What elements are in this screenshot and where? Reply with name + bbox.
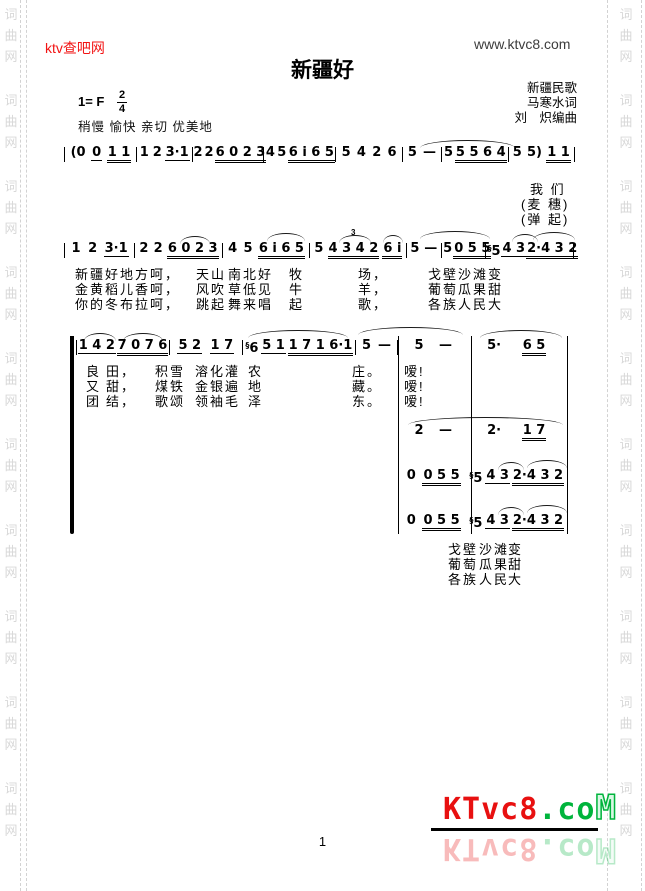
lyric-row-verse1: 新疆好地方呵，天山南北好牧场，戈壁沙滩变 [0, 264, 645, 279]
watermark-char: 曲 [3, 111, 19, 132]
note-token: 6 5 [522, 339, 547, 356]
credit-lyricist: 马寒水词 [514, 96, 577, 111]
note-token: 5 [242, 242, 253, 256]
note-token: 5 [341, 146, 352, 160]
lyric-intro-3: (弹 起) [521, 209, 569, 228]
note-token: 5 [407, 146, 418, 160]
slur-arc [383, 235, 403, 243]
watermark-char: 曲 [3, 197, 19, 218]
voice-4-line: 00 5 5§54 32·4 3 2 [400, 514, 566, 532]
segno-mark: § [245, 341, 249, 350]
lyric-segment: 泽 [248, 391, 263, 410]
note-token: — [423, 242, 438, 256]
watermark-group: 词曲网 [618, 434, 634, 497]
watermark-group: 词曲网 [3, 606, 19, 669]
note-token: 5 [512, 146, 523, 160]
lyric-segment: 舞来唱 [228, 294, 273, 313]
slur-arc [267, 233, 305, 241]
note-token: 2· [486, 424, 502, 438]
tempo-marking: 稍慢 愉快 亲切 优美地 [78, 116, 213, 135]
note-token: 5 [442, 242, 453, 256]
measure: 5426 [336, 146, 401, 160]
logo-green-text: .co [538, 792, 595, 827]
slur-arc [84, 333, 116, 341]
watermark-char: 词 [3, 520, 19, 541]
segno-mark: § [487, 244, 491, 253]
note-token: 2 [371, 146, 382, 160]
left-dashed-border-outer [26, 0, 27, 891]
lyric-segment: 大 [508, 569, 523, 588]
watermark-char: 词 [3, 778, 19, 799]
watermark-char: 词 [618, 692, 634, 713]
voice-1-line: 5—5·6 5 [400, 339, 566, 357]
note-token: 5) [526, 146, 543, 160]
note-token: 4 3 4 2 [328, 242, 380, 259]
watermark-char: 曲 [3, 25, 19, 46]
credit-source: 新疆民歌 [514, 81, 577, 96]
measure: 00 5 5 [400, 514, 466, 531]
watermark-char: 词 [618, 606, 634, 627]
key-label: 1= F [78, 94, 104, 109]
measure: 5— [400, 339, 466, 353]
watermark-char: 词 [618, 434, 634, 455]
note-token: 2·4 3 2 [526, 242, 578, 259]
lyric-segment: 各族 [428, 294, 458, 313]
note-token: 5 5 6 4 [455, 146, 507, 163]
lyric-segment: 歌颂 [155, 391, 185, 410]
right-dashed-border-inner [607, 0, 608, 891]
note-token: 2 [153, 242, 164, 256]
note-token: — [422, 146, 437, 160]
note-token: — [438, 424, 453, 438]
note-token: 6 [387, 146, 398, 160]
tie-arc [408, 417, 563, 425]
slur-arc [180, 236, 210, 244]
note-token: — [438, 339, 453, 353]
lyric-row-coda2: 葡萄瓜果甜 [0, 554, 645, 569]
note-token: 2 [413, 424, 424, 438]
lyric-row-verse3-b: 团结，歌颂领袖毛泽东。 [0, 391, 645, 406]
watermark-char: 词 [3, 434, 19, 455]
watermark-char: 词 [618, 520, 634, 541]
lyric-segment: 人民 [479, 569, 509, 588]
note-token: 5 [413, 339, 424, 353]
site-url-text[interactable]: www.ktvc8.com [474, 36, 570, 52]
watermark-char: 曲 [618, 111, 634, 132]
logo-reflection: KTvc8.coM [443, 831, 617, 867]
credit-composer: 刘 炽编曲 [514, 111, 577, 126]
watermark-group: 词曲网 [618, 692, 634, 755]
note-token: 1 7 [210, 339, 235, 354]
watermark-char: 网 [3, 476, 19, 497]
watermark-char: 曲 [618, 713, 634, 734]
measure: §54 32·4 3 2 [466, 469, 566, 486]
watermark-group: 词曲网 [3, 176, 19, 239]
note-token: 1 7 [522, 424, 547, 441]
note-token: 6 i 6 5 [288, 146, 335, 163]
lyric-segment: 东。 [352, 391, 382, 410]
right-watermark-column: 词曲网词曲网词曲网词曲网词曲网词曲网词曲网词曲网词曲网词曲网 [618, 4, 634, 891]
note-token: 3·1 [104, 242, 129, 257]
logo-outline-text: M [596, 788, 617, 828]
lyric-row-verse2: 金黄稻儿香呵，风吹草低见牛羊，葡萄瓜果甜 [0, 279, 645, 294]
lyric-segment: 团 [86, 391, 101, 410]
watermark-char: 曲 [3, 627, 19, 648]
watermark-char: 词 [3, 692, 19, 713]
logo-reflection-green: .co [538, 831, 595, 866]
watermark-char: 曲 [618, 627, 634, 648]
measure: §54 32·4 3 2 [486, 242, 573, 259]
tie-arc [358, 327, 463, 335]
tie-arc [420, 231, 490, 239]
watermark-char: 词 [3, 90, 19, 111]
lyric-exclaim-3: 嗳! [404, 391, 425, 410]
barline [574, 147, 575, 162]
triplet-number: 3 [351, 228, 355, 237]
lyric-row-coda3: 各族人民大 [0, 569, 645, 584]
song-title: 新疆好 [0, 54, 645, 84]
lyric-segment: 大 [488, 294, 503, 313]
measure: 50 5 5 [442, 242, 485, 259]
note-token: 5 2 [177, 339, 202, 354]
lyric-row-verse3: 你的冬布拉呵，跳起舞来唱起歌，各族人民大 [0, 294, 645, 309]
watermark-char: 词 [3, 606, 19, 627]
lyric-segment: 起 [289, 294, 304, 313]
note-token: 6 0 2 3 [167, 242, 219, 259]
note-token: 7 0 7 6 [117, 339, 169, 356]
watermark-group: 词曲网 [618, 176, 634, 239]
note-token: 5 [443, 146, 454, 160]
lyric-segment: 歌， [358, 294, 388, 313]
note-token: 1 1 [107, 146, 132, 163]
lyric-segment: 各族 [448, 569, 478, 588]
watermark-char: 词 [618, 4, 634, 25]
measure: 226 0 2 3 [193, 146, 264, 163]
music-line-1: (001 1123·1226 0 2 3456 i 6 554265—55 5 … [64, 146, 575, 164]
site-logo[interactable]: KTvc8.coM [443, 791, 617, 827]
slur-arc [533, 232, 575, 240]
note-token: 2 [193, 146, 204, 160]
measure: 123·1 [65, 242, 134, 257]
lyric-segment: 结， [106, 391, 136, 410]
watermark-char: 网 [618, 476, 634, 497]
note-token: 5 [361, 339, 372, 353]
measure: 2— [400, 424, 466, 438]
watermark-char: 网 [3, 218, 19, 239]
watermark-group: 词曲网 [618, 606, 634, 669]
voice-3-line: 00 5 5§54 32·4 3 2 [400, 469, 566, 487]
measure: 226 0 2 3 [135, 242, 222, 259]
logo-reflection-outline: M [596, 830, 617, 870]
lyric-segment: 你的冬布拉呵， [75, 294, 180, 313]
note-token: 6 i 6 5 [258, 242, 305, 259]
measure: §54 32·4 3 2 [466, 514, 566, 531]
voice-2-line: 2—2·1 7 [400, 424, 566, 442]
watermark-char: 网 [3, 734, 19, 755]
note-token: 1 4 2 [78, 339, 116, 354]
music-line-3: 1 4 27 0 7 65 21 7§65 11 7 1 6·15— [76, 339, 398, 357]
note-token: 5 [276, 146, 287, 160]
lyric-segment: 领袖毛 [195, 391, 240, 410]
watermark-char: 网 [618, 132, 634, 153]
watermark-group: 词曲网 [618, 90, 634, 153]
watermark-char: 词 [618, 90, 634, 111]
lyric-row-verse1-b: 良田，积雪溶化灌农庄。 [0, 361, 645, 376]
lyric-row-verse2-b: 又甜，煤铁金银遍地藏。 [0, 376, 645, 391]
note-token: 2 [138, 242, 149, 256]
note-token: 4 [265, 146, 276, 160]
note-token: 4 [227, 242, 238, 256]
slur-arc [527, 460, 567, 468]
watermark-group: 词曲网 [3, 90, 19, 153]
note-token: 1 7 1 6·1 [288, 339, 354, 356]
slur-arc [480, 330, 562, 338]
measure: 54 3 4 26 i [310, 242, 405, 259]
lyric-segment: 人民 [458, 294, 488, 313]
measure: 1 4 27 0 7 6 [77, 339, 169, 356]
note-token: — [377, 339, 392, 353]
note-token: 4 3 [501, 242, 526, 257]
measure: 5— [403, 146, 441, 160]
time-signature-denominator: 4 [117, 103, 127, 115]
note-token: 0 [406, 514, 417, 528]
watermark-group: 词曲网 [618, 778, 634, 841]
measure: 00 5 5 [400, 469, 466, 486]
measure: 123·1 [137, 146, 192, 161]
note-token: (0 [70, 146, 87, 160]
note-token: 4 3 [485, 469, 510, 484]
note-token: 0 [406, 469, 417, 483]
watermark-char: 曲 [3, 799, 19, 820]
watermark-group: 词曲网 [3, 434, 19, 497]
watermark-char: 词 [618, 176, 634, 197]
note-token: 2 [87, 242, 98, 256]
watermark-char: 曲 [618, 25, 634, 46]
measure: 5— [407, 242, 442, 256]
note-token: 2 [152, 146, 163, 160]
measure: §65 11 7 1 6·1 [243, 339, 355, 356]
note-token: 5 1 [261, 339, 286, 354]
note-token: 4 [356, 146, 367, 160]
watermark-group: 词曲网 [3, 778, 19, 841]
watermark-char: 词 [618, 778, 634, 799]
watermark-char: 曲 [3, 455, 19, 476]
watermark-char: 曲 [618, 197, 634, 218]
measure: 5 21 7 [170, 339, 242, 354]
left-dashed-border-inner [20, 0, 21, 891]
lyric-row-coda1: 戈壁沙滩变 [0, 539, 645, 554]
watermark-char: 曲 [618, 799, 634, 820]
watermark-char: 网 [618, 734, 634, 755]
lyric-segment: 跳起 [196, 294, 226, 313]
time-signature-numerator: 2 [117, 90, 127, 103]
note-token: 4 3 [485, 514, 510, 529]
note-token: 1 [139, 146, 150, 160]
note-token: 6 i [382, 242, 402, 259]
key-signature: 1= F 2 4 [78, 90, 127, 115]
barline [573, 243, 574, 258]
watermark-char: 曲 [618, 455, 634, 476]
time-signature: 2 4 [117, 90, 127, 115]
note-token: 1 1 [546, 146, 571, 163]
slur-arc [123, 333, 163, 341]
note-token: 0 [91, 146, 102, 161]
note-token: 0 5 5 [422, 514, 460, 531]
slur-arc [527, 505, 567, 513]
watermark-char: 词 [3, 176, 19, 197]
note-token: 1 [71, 242, 82, 256]
measure: 55 5 6 4 [442, 146, 507, 163]
tie-arc [420, 140, 515, 148]
measure: 55)1 1 [509, 146, 574, 163]
measure: 5— [356, 339, 397, 353]
slur-arc [248, 330, 348, 338]
note-token: 3·1 [165, 146, 190, 161]
watermark-char: 网 [618, 648, 634, 669]
watermark-char: 词 [3, 4, 19, 25]
measure: 2·1 7 [466, 424, 566, 441]
note-token: 2·4 3 2 [512, 514, 564, 531]
credits-block: 新疆民歌 马寒水词 刘 炽编曲 [514, 81, 577, 126]
note-token: 5· [486, 339, 502, 353]
note-token: 0 5 5 [422, 469, 460, 486]
right-dashed-border-outer [641, 0, 642, 891]
slur-arc [498, 462, 524, 470]
watermark-char: 曲 [3, 713, 19, 734]
watermark-char: 网 [3, 648, 19, 669]
measure: 5·6 5 [466, 339, 566, 356]
watermark-char: 网 [3, 132, 19, 153]
watermark-char: 网 [618, 218, 634, 239]
measure: (001 1 [65, 146, 136, 163]
note-token: §6 [244, 339, 259, 356]
measure: 456 i 6 5 [264, 146, 335, 163]
note-token: 2·4 3 2 [512, 469, 564, 486]
note-token: 5 [409, 242, 420, 256]
note-token: 2 [204, 146, 215, 160]
watermark-group: 词曲网 [3, 692, 19, 755]
measure: 456 i 6 5 [223, 242, 310, 259]
left-watermark-column: 词曲网词曲网词曲网词曲网词曲网词曲网词曲网词曲网词曲网词曲网 [3, 4, 19, 891]
note-token: §5 [486, 242, 501, 259]
slur-arc [498, 507, 524, 515]
logo-red-text: KTvc8 [443, 792, 538, 827]
music-line-2: 123·1226 0 2 3456 i 6 554 3 4 26 i5—50 5… [64, 242, 574, 260]
logo-reflection-red: KTvc8 [443, 831, 538, 866]
note-token: 6 0 2 3 [215, 146, 267, 163]
note-token: 5 [313, 242, 324, 256]
